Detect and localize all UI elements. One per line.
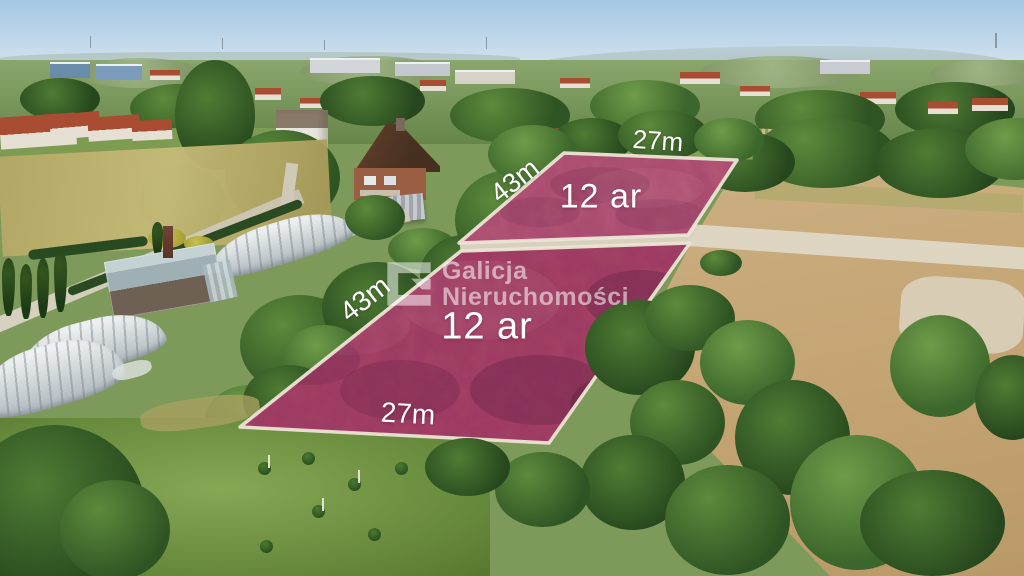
plot-lower-area-label: 12 ar	[441, 306, 533, 349]
watermark: Galicja Nieruchomości	[383, 258, 629, 310]
foreground-trees	[665, 465, 790, 575]
plot-upper-area-label: 12 ar	[560, 178, 643, 217]
plot-upper-front-label: 27m	[632, 124, 685, 158]
plot-lower-front-label: 27m	[380, 397, 436, 432]
field-bush	[700, 250, 742, 276]
foreground-trees	[860, 470, 1005, 576]
watermark-line1: Galicja	[442, 258, 629, 284]
aerial-photo-scene: Galicja Nieruchomości 27m 43m 12 ar 43m …	[0, 0, 1024, 576]
watermark-text: Galicja Nieruchomości	[442, 258, 629, 310]
galicja-logo-icon	[383, 258, 435, 310]
foreground-trees	[425, 438, 510, 496]
